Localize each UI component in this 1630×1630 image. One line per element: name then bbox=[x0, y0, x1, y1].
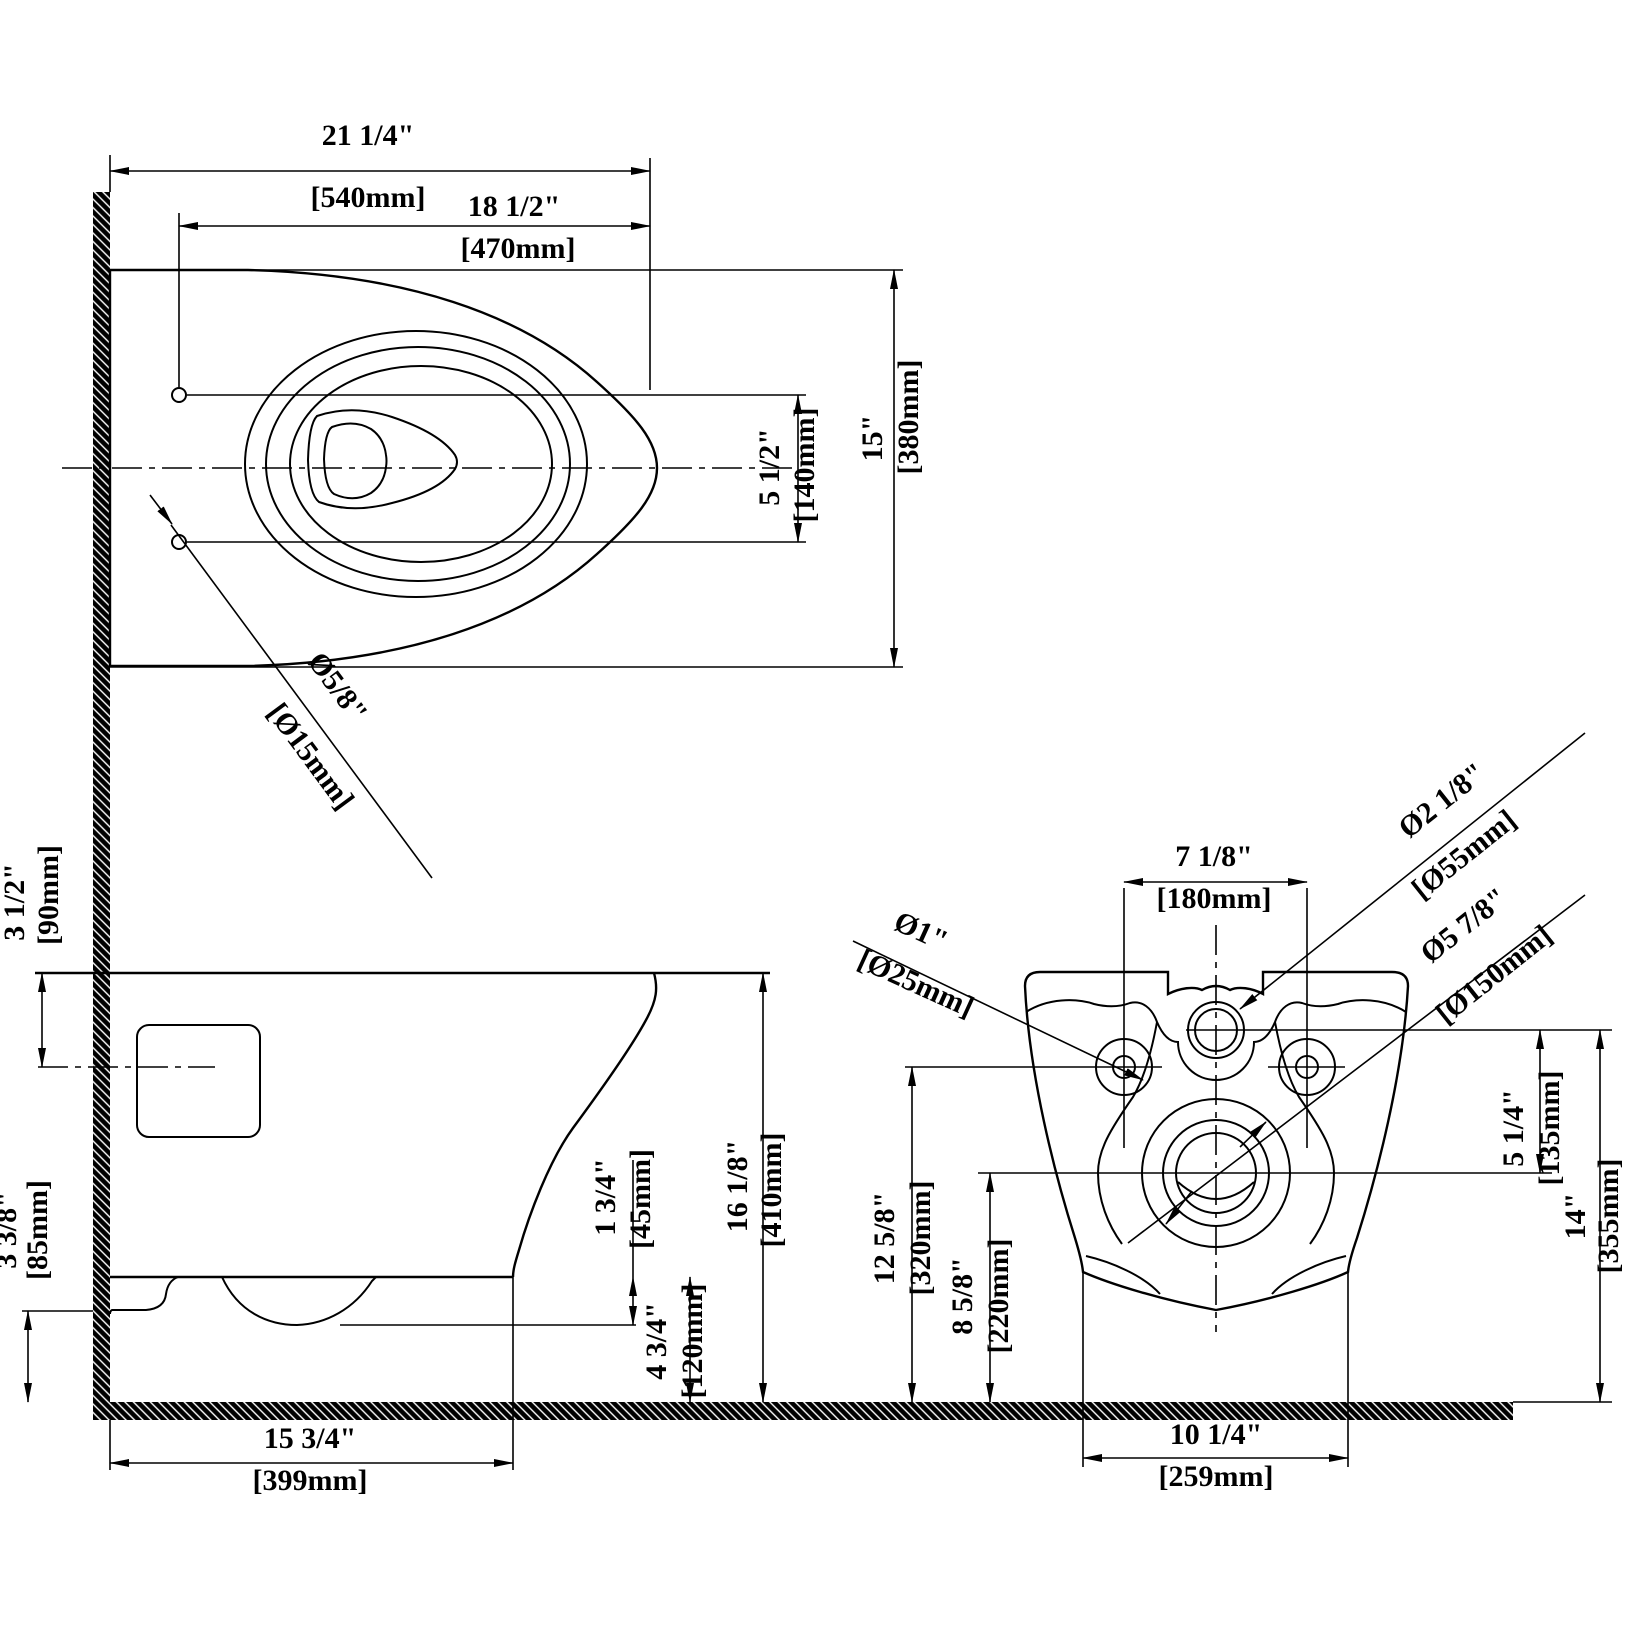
dim-label: [320mm] bbox=[904, 1181, 937, 1296]
bottom-crease-left bbox=[1086, 1256, 1160, 1294]
dim-label: 18 1/2" bbox=[468, 190, 561, 223]
leader-arrow-hole-dia bbox=[150, 495, 172, 524]
technical-drawing-page: 21 1/4" [540mm] 18 1/2" [470mm] 15" [380… bbox=[0, 0, 1630, 1630]
dim-label: [410mm] bbox=[755, 1133, 788, 1248]
seat-inner-ring bbox=[266, 347, 570, 581]
floor-section bbox=[93, 1402, 1513, 1420]
dim-label: [259mm] bbox=[1159, 1460, 1274, 1493]
trap-bulge-arc bbox=[222, 1277, 376, 1325]
dim-label: [220mm] bbox=[982, 1239, 1015, 1354]
dim-label: 10 1/4" bbox=[1170, 1418, 1263, 1451]
wall-and-floor bbox=[93, 192, 1612, 1420]
dim-label: 8 5/8" bbox=[946, 1257, 979, 1335]
top-view-outline bbox=[62, 270, 795, 666]
dim-label: 21 1/4" bbox=[322, 119, 415, 152]
leader-arrow-drain-upper bbox=[1240, 1122, 1266, 1147]
rear-view-dimensions: 7 1/8" [180mm] Ø2 1/8" [Ø55mm] Ø1" [Ø25m… bbox=[853, 733, 1625, 1493]
rear-view-outline bbox=[1025, 925, 1408, 1332]
toilet-dimension-drawing: 21 1/4" [540mm] 18 1/2" [470mm] 15" [380… bbox=[0, 0, 1630, 1630]
dim-label: [540mm] bbox=[311, 181, 426, 214]
actuator-plate-outline bbox=[137, 1025, 260, 1137]
dim-label: 15 3/4" bbox=[264, 1422, 357, 1455]
dim-label: 3 1/2" bbox=[0, 863, 31, 941]
side-view-outline bbox=[35, 973, 770, 1325]
bottom-crease-right bbox=[1272, 1256, 1346, 1294]
dim-label: 1 3/4" bbox=[589, 1158, 622, 1236]
seat-outer-ring bbox=[245, 331, 587, 597]
dim-label: 7 1/8" bbox=[1175, 840, 1253, 873]
leader-line-hole-dia bbox=[171, 525, 432, 878]
sump-outline bbox=[324, 423, 387, 498]
wall-section bbox=[93, 192, 110, 1420]
side-view: 3 1/2" [90mm] 3 3/8" [85mm] 1 3/4" [45mm… bbox=[0, 845, 788, 1497]
dim-label: 16 1/8" bbox=[721, 1140, 754, 1233]
dim-label: 15" bbox=[856, 415, 889, 462]
dim-label: 12 5/8" bbox=[868, 1192, 901, 1285]
dim-label: [470mm] bbox=[461, 232, 576, 265]
side-view-dimensions: 3 1/2" [90mm] 3 3/8" [85mm] 1 3/4" [45mm… bbox=[0, 845, 788, 1497]
dim-label: Ø1" bbox=[889, 905, 953, 958]
dim-label: 14" bbox=[1559, 1193, 1592, 1240]
dim-label: [45mm] bbox=[624, 1149, 657, 1249]
leader-line-inlet-dia bbox=[1240, 733, 1585, 1009]
dim-label: [90mm] bbox=[32, 845, 65, 945]
dim-label: [85mm] bbox=[21, 1180, 54, 1280]
mounting-hole-upper bbox=[172, 388, 186, 402]
dim-label: [355mm] bbox=[1592, 1159, 1625, 1274]
dim-label: [120mm] bbox=[676, 1284, 709, 1399]
top-view: 21 1/4" [540mm] 18 1/2" [470mm] 15" [380… bbox=[62, 119, 925, 878]
dim-label: [Ø25mm] bbox=[853, 943, 979, 1024]
dim-label: 5 1/2" bbox=[753, 428, 786, 506]
rear-view: 7 1/8" [180mm] Ø2 1/8" [Ø55mm] Ø1" [Ø25m… bbox=[853, 733, 1625, 1493]
dim-label: [135mm] bbox=[1533, 1071, 1566, 1186]
top-view-dimensions: 21 1/4" [540mm] 18 1/2" [470mm] 15" [380… bbox=[110, 119, 925, 878]
drain-surround-left bbox=[1098, 1022, 1157, 1244]
supply-step-outline bbox=[110, 1277, 178, 1314]
dim-label: [399mm] bbox=[253, 1464, 368, 1497]
dim-label: [180mm] bbox=[1157, 882, 1272, 915]
dim-label: [380mm] bbox=[892, 360, 925, 475]
dim-label: 5 1/4" bbox=[1497, 1089, 1530, 1167]
dim-label: 3 3/8" bbox=[0, 1191, 23, 1269]
dim-label: [140mm] bbox=[788, 408, 821, 523]
water-surface-outline bbox=[308, 410, 457, 508]
dim-label: 4 3/4" bbox=[640, 1302, 673, 1380]
